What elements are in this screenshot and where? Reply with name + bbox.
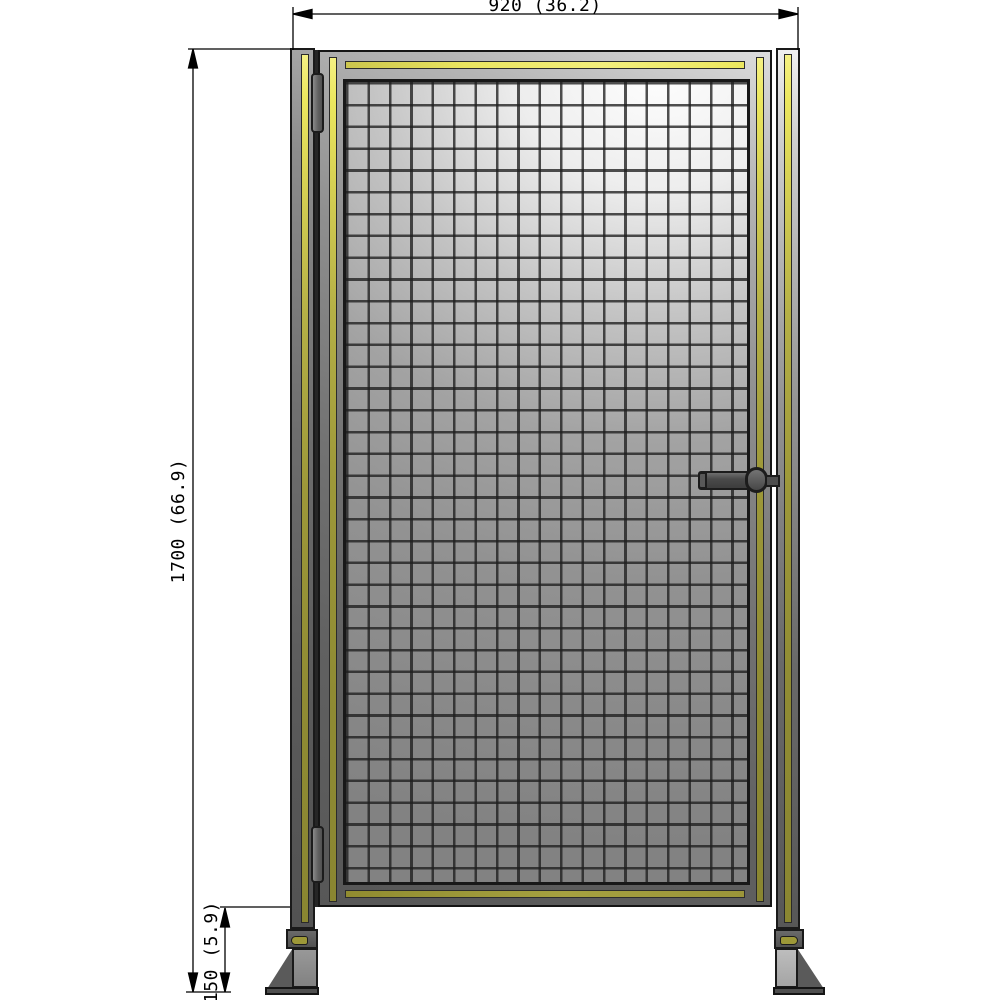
arrow-left-icon	[293, 10, 312, 19]
arrow-up-icon	[189, 49, 198, 68]
technical-drawing: 920 (36.2) 1700 (66.9) 150 (5.9)	[0, 0, 1000, 1000]
width-dimension-label: 920 (36.2)	[395, 0, 695, 16]
ground-clearance-dimension-label: 150 (5.9)	[202, 882, 222, 1000]
arrow-down-icon	[189, 973, 198, 992]
height-dimension-label: 1700 (66.9)	[169, 441, 189, 601]
arrow-right-icon	[779, 10, 798, 19]
dimension-lines	[0, 0, 1000, 1000]
